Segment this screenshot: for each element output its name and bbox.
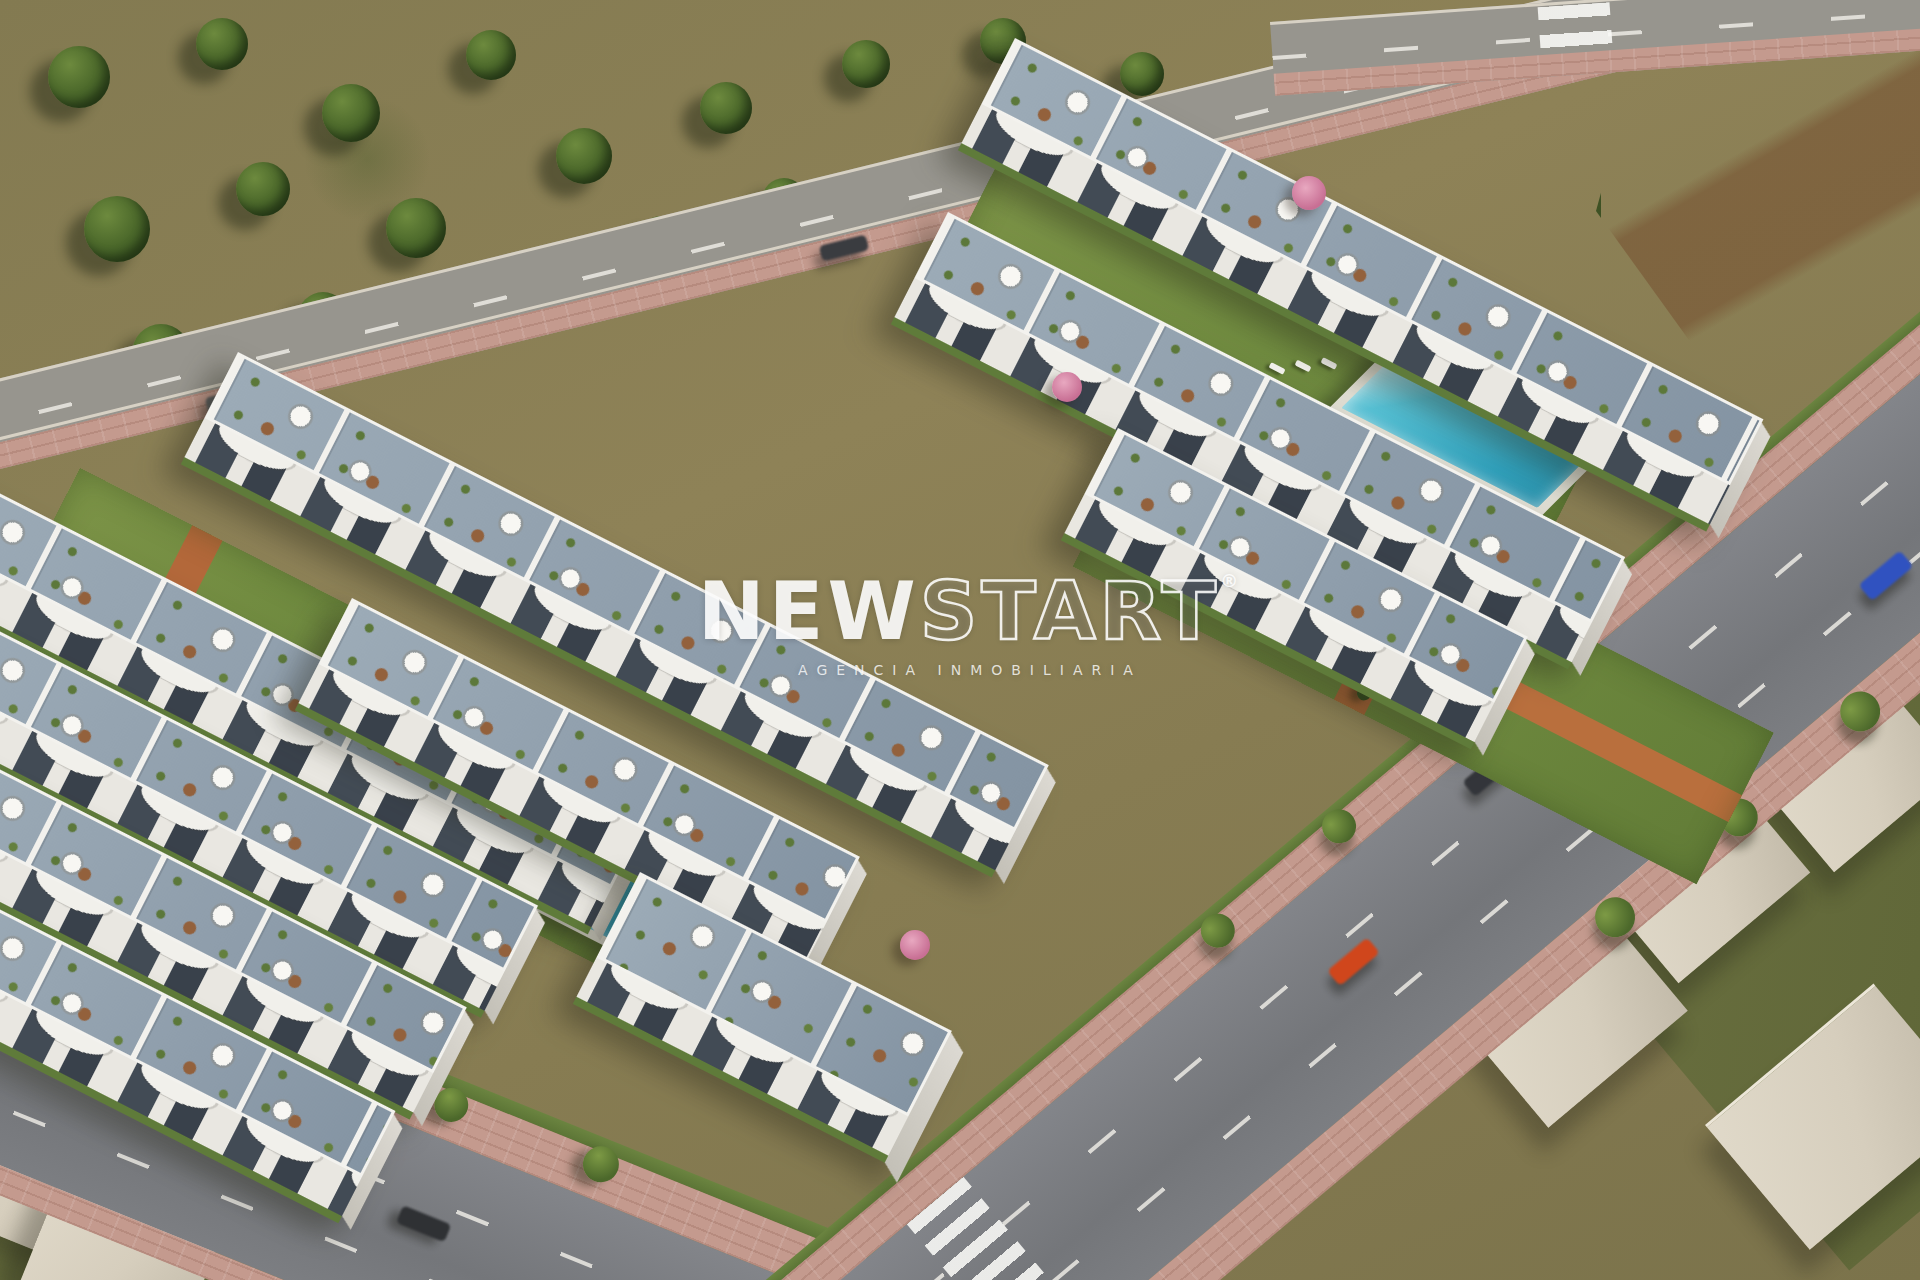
watermark-tagline: AGENCIA INMOBILIARIA bbox=[690, 662, 1250, 678]
park-tree bbox=[556, 128, 612, 184]
aerial-render-scene: NEWSTART® AGENCIA INMOBILIARIA bbox=[0, 0, 1920, 1280]
flowering-tree bbox=[900, 930, 930, 960]
watermark-brand-new: NEW bbox=[698, 565, 920, 658]
registered-trademark-icon: ® bbox=[1220, 570, 1242, 591]
park-tree bbox=[466, 30, 516, 80]
flowering-tree bbox=[1292, 176, 1326, 210]
park-tree bbox=[386, 198, 446, 258]
watermark-brand: NEWSTART® bbox=[690, 572, 1250, 652]
park-tree bbox=[842, 40, 890, 88]
park-tree bbox=[48, 46, 110, 108]
park-tree bbox=[700, 82, 752, 134]
park-tree bbox=[322, 84, 380, 142]
flowering-tree bbox=[1052, 372, 1082, 402]
watermark: NEWSTART® AGENCIA INMOBILIARIA bbox=[690, 572, 1250, 678]
park-tree bbox=[1120, 52, 1164, 96]
park-tree bbox=[196, 18, 248, 70]
watermark-brand-start: START bbox=[920, 565, 1220, 658]
park-tree bbox=[84, 196, 150, 262]
park-tree bbox=[236, 162, 290, 216]
